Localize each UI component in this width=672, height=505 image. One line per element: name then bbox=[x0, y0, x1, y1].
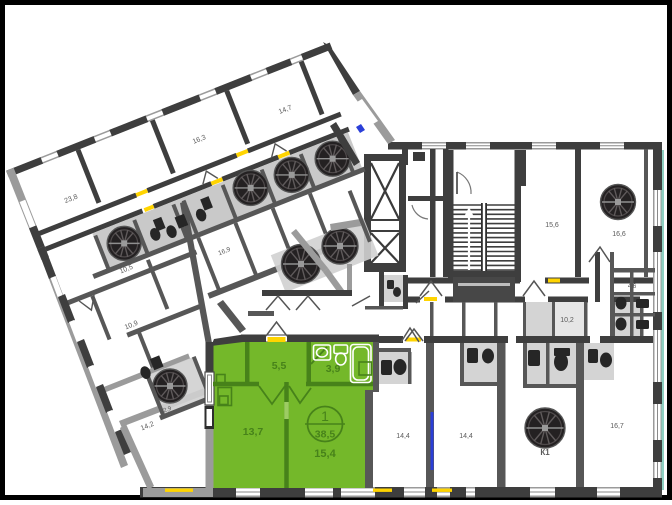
svg-text:1: 1 bbox=[321, 408, 329, 424]
svg-text:14,4: 14,4 bbox=[396, 433, 410, 440]
svg-text:4,6: 4,6 bbox=[628, 284, 637, 290]
svg-text:15,6: 15,6 bbox=[545, 222, 559, 229]
svg-text:К1: К1 bbox=[540, 448, 550, 457]
svg-text:3,9: 3,9 bbox=[326, 363, 341, 375]
svg-text:14,4: 14,4 bbox=[459, 433, 473, 440]
svg-text:16,7: 16,7 bbox=[610, 423, 624, 430]
svg-text:13,7: 13,7 bbox=[243, 426, 264, 438]
svg-text:38,5: 38,5 bbox=[315, 429, 336, 441]
svg-text:15,4: 15,4 bbox=[314, 448, 336, 460]
svg-text:5,5: 5,5 bbox=[272, 360, 287, 372]
svg-text:16,6: 16,6 bbox=[612, 231, 626, 238]
svg-text:10,2: 10,2 bbox=[560, 317, 574, 324]
